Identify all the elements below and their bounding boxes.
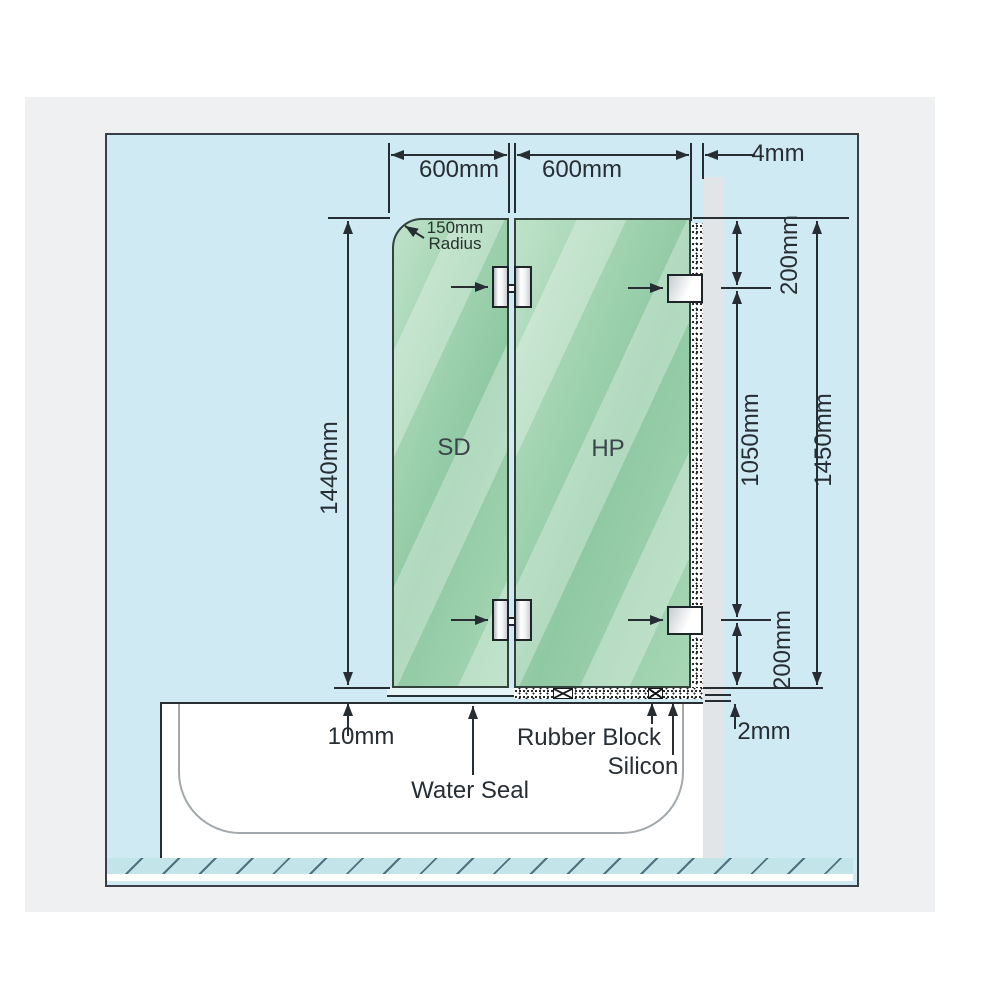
dim-tub-clearance: 10mm [328,725,395,749]
label-rubber-block: Rubber Block [517,726,661,750]
panel-label-hp: HP [591,435,624,463]
product-image-card: 600mm 600mm 4mm 150mm Radius 1440mm 200m… [25,97,935,912]
diagram-frame: 600mm 600mm 4mm 150mm Radius 1440mm 200m… [105,133,859,887]
dim-bracket-spacing: 1050mm [739,393,763,486]
dim-sd-width: 600mm [419,158,499,182]
dim-wall-gap: 4mm [751,142,804,166]
corner-radius-word: Radius [417,236,493,252]
dim-hp-width: 600mm [542,158,622,182]
dim-top-bracket-offset: 200mm [778,215,802,295]
label-silicon: Silicon [608,755,679,779]
page-background: 600mm 600mm 4mm 150mm Radius 1440mm 200m… [0,0,1000,1000]
panel-label-sd: SD [437,434,470,462]
dim-sd-height: 1440mm [318,421,342,514]
dim-overall-height: 1450mm [812,393,836,486]
dim-bottom-bracket-offset: 200mm [771,610,795,690]
corner-radius-note: 150mm Radius [417,220,493,252]
label-water-seal: Water Seal [411,779,529,803]
dim-bottom-edge-gap: 2mm [737,720,790,744]
